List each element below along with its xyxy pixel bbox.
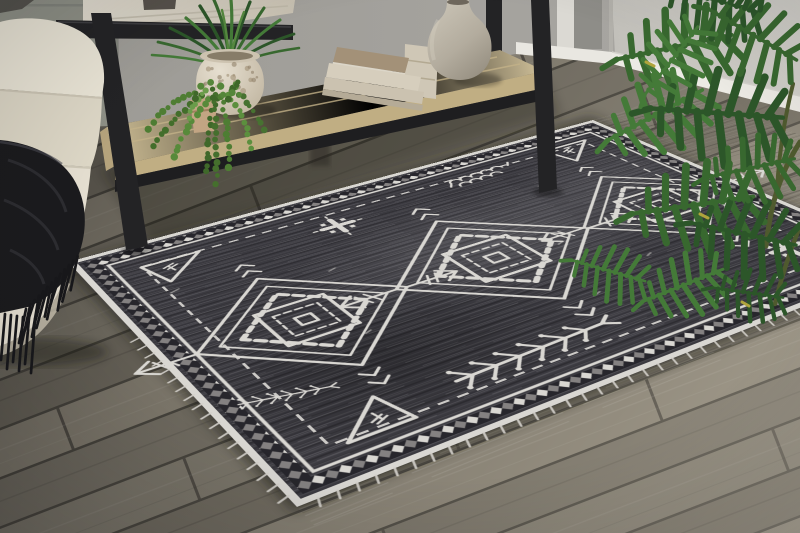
living-room-photo [0,0,800,533]
console-front-legs [91,0,563,255]
console-front-left-leg [91,13,148,250]
foreground [0,0,800,533]
plant-leaves [553,0,800,338]
philodendron [553,0,800,338]
sofa-arm [0,18,104,97]
console-front-right-leg [531,0,557,193]
